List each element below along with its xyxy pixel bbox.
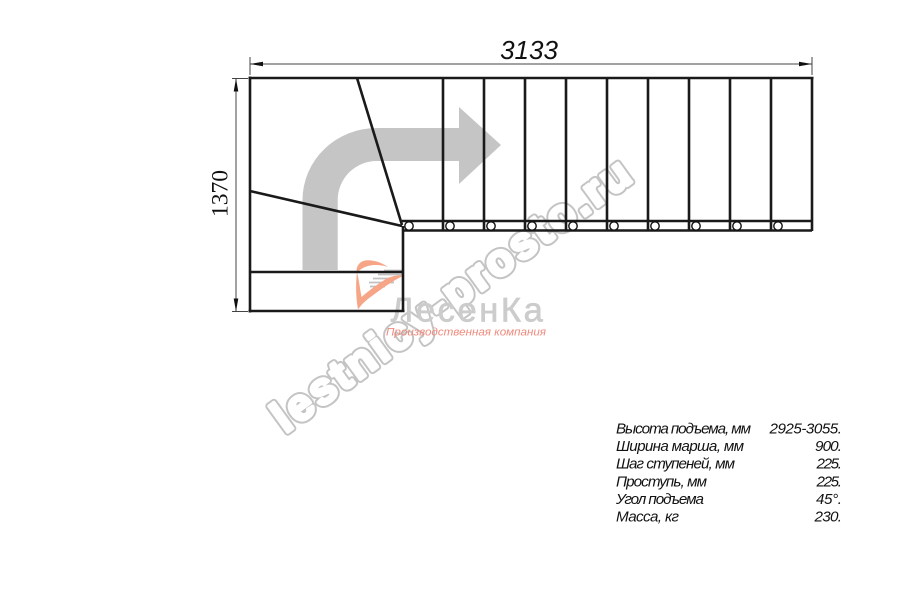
svg-text:1370: 1370 <box>208 170 234 217</box>
svg-text:ЛесенКа: ЛесенКа <box>391 292 546 330</box>
svg-text:Масса, кг: Масса, кг <box>616 509 680 526</box>
svg-text:Ширина марша, мм: Ширина марша, мм <box>616 438 745 455</box>
svg-text:230.: 230. <box>814 509 843 526</box>
svg-text:2925-3055.: 2925-3055. <box>769 421 843 438</box>
svg-text:Проступь, мм: Проступь, мм <box>616 473 708 490</box>
svg-text:Шаг ступеней, мм: Шаг ступеней, мм <box>616 456 736 473</box>
svg-text:45°.: 45°. <box>816 491 842 508</box>
svg-text:Высота подъема, мм: Высота подъема, мм <box>616 421 752 438</box>
svg-text:225.: 225. <box>816 456 843 473</box>
svg-text:900.: 900. <box>815 438 842 455</box>
svg-text:3133: 3133 <box>500 35 558 65</box>
svg-text:Производственная компания: Производственная компания <box>386 327 546 339</box>
svg-text:Угол подъема: Угол подъема <box>615 491 704 508</box>
svg-text:225.: 225. <box>816 473 843 490</box>
